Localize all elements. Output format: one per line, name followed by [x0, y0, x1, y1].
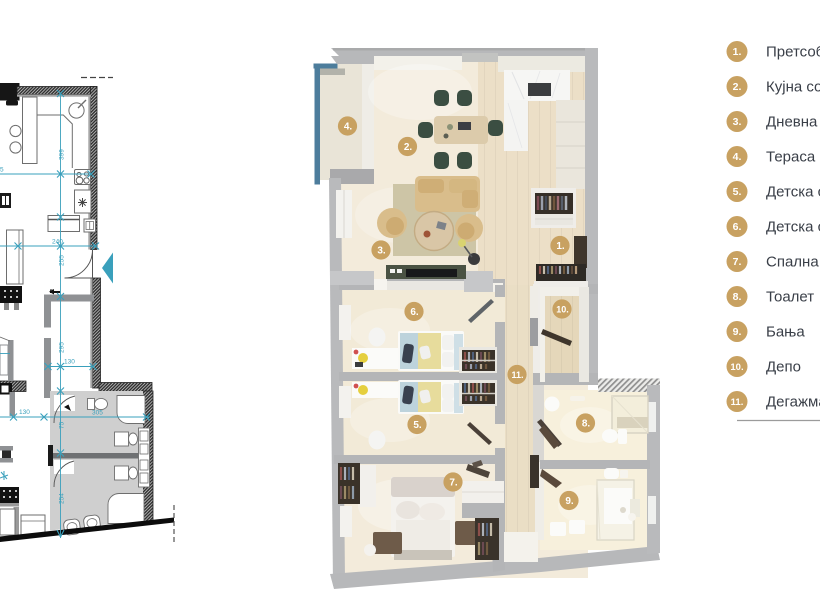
svg-text:5.: 5.: [413, 420, 422, 431]
svg-text:Детска соба: Детска соба: [766, 219, 820, 236]
svg-text:75: 75: [59, 421, 66, 429]
svg-text:Дегажман: Дегажман: [766, 394, 820, 411]
svg-text:Кујна со трпезарија: Кујна со трпезарија: [766, 79, 820, 96]
svg-text:1.: 1.: [733, 46, 742, 58]
svg-text:11.: 11.: [511, 370, 523, 380]
svg-text:Депо: Депо: [766, 359, 801, 376]
svg-text:Детска соба: Детска соба: [766, 184, 820, 201]
svg-text:2.: 2.: [404, 142, 413, 153]
svg-text:7.: 7.: [733, 256, 742, 268]
svg-text:Спална соба: Спална соба: [766, 254, 820, 271]
svg-text:11.: 11.: [731, 397, 744, 408]
svg-text:5.: 5.: [733, 186, 742, 198]
svg-text:Бања: Бања: [766, 324, 805, 341]
svg-text:10.: 10.: [556, 304, 569, 314]
svg-text:399: 399: [59, 149, 66, 160]
svg-text:3.: 3.: [733, 116, 742, 128]
svg-text:Тоалет: Тоалет: [766, 289, 814, 306]
svg-text:255: 255: [59, 255, 66, 266]
svg-text:6.: 6.: [410, 307, 419, 318]
svg-text:4.: 4.: [733, 151, 742, 163]
svg-text:8.: 8.: [582, 419, 591, 430]
svg-text:2.: 2.: [733, 81, 742, 93]
svg-text:Претсобје: Претсобје: [766, 44, 820, 61]
svg-text:9.: 9.: [733, 326, 742, 338]
svg-text:9.: 9.: [565, 496, 574, 507]
svg-text:5: 5: [0, 167, 4, 174]
svg-text:Дневна соба: Дневна соба: [766, 114, 820, 131]
svg-text:240: 240: [52, 239, 63, 246]
svg-text:6.: 6.: [733, 221, 742, 233]
svg-text:130: 130: [19, 409, 30, 416]
svg-text:7.: 7.: [449, 478, 458, 489]
svg-text:1.: 1.: [556, 241, 565, 252]
svg-text:Тераса: Тераса: [766, 149, 816, 166]
svg-text:305: 305: [92, 410, 103, 417]
svg-text:295: 295: [59, 342, 66, 353]
svg-text:254: 254: [59, 493, 66, 504]
svg-text:8.: 8.: [733, 291, 742, 303]
svg-text:3.: 3.: [377, 246, 386, 257]
svg-text:10.: 10.: [730, 362, 743, 373]
svg-text:4.: 4.: [344, 122, 353, 133]
svg-text:130: 130: [64, 359, 75, 366]
